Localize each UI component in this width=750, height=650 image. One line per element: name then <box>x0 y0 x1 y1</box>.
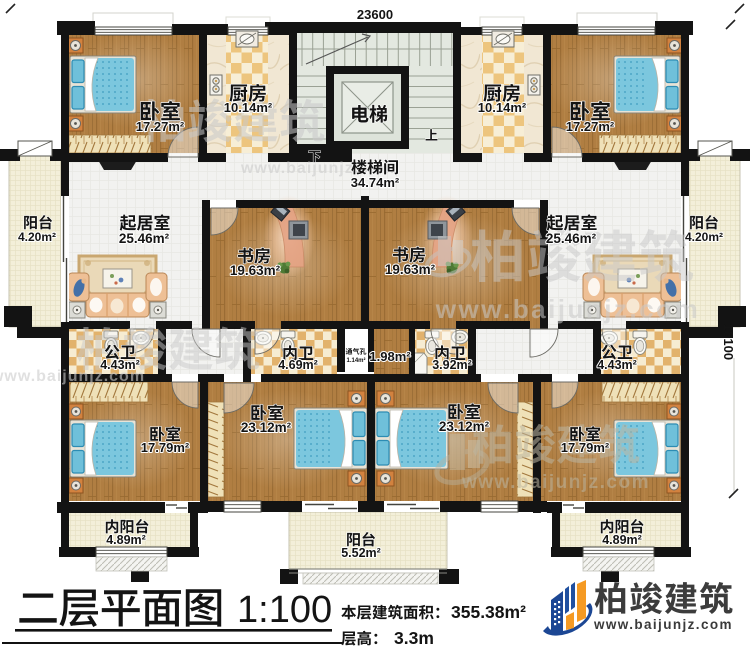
svg-text:19.63m²: 19.63m² <box>385 262 436 277</box>
svg-text:23.12m²: 23.12m² <box>241 420 292 435</box>
svg-text:18100: 18100 <box>721 324 736 360</box>
svg-text:17.79m²: 17.79m² <box>141 440 190 455</box>
svg-text:355.38m²: 355.38m² <box>451 602 526 622</box>
svg-text:www.baijunjz.com: www.baijunjz.com <box>435 294 700 324</box>
svg-text:17.27m²: 17.27m² <box>136 119 185 134</box>
svg-text:17.79m²: 17.79m² <box>561 440 610 455</box>
svg-text:3.92m²: 3.92m² <box>432 358 472 372</box>
svg-text:4.69m²: 4.69m² <box>278 358 318 372</box>
svg-text:www.baijunjz.com: www.baijunjz.com <box>593 617 733 632</box>
svg-text:4.43m²: 4.43m² <box>597 358 637 372</box>
svg-text:23600: 23600 <box>357 7 393 22</box>
svg-text:www.baijunjz.com: www.baijunjz.com <box>461 472 650 493</box>
svg-text:3.3m: 3.3m <box>394 628 434 648</box>
svg-text:10.14m²: 10.14m² <box>224 100 273 115</box>
svg-text:25.46m²: 25.46m² <box>546 231 597 246</box>
svg-text:4.89m²: 4.89m² <box>602 533 642 547</box>
svg-text:17.27m²: 17.27m² <box>566 119 615 134</box>
svg-text:4.89m²: 4.89m² <box>106 533 146 547</box>
svg-text:23.12m²: 23.12m² <box>439 419 490 434</box>
svg-text:4.43m²: 4.43m² <box>100 358 140 372</box>
svg-text:1.14m²: 1.14m² <box>346 357 365 364</box>
svg-text:4.20m²: 4.20m² <box>685 230 723 244</box>
svg-text:5.52m²: 5.52m² <box>341 546 381 560</box>
svg-text:1.98m²: 1.98m² <box>369 349 411 364</box>
svg-text:4.20m²: 4.20m² <box>18 230 56 244</box>
svg-text:25.46m²: 25.46m² <box>119 231 170 246</box>
svg-text:10.14m²: 10.14m² <box>478 100 527 115</box>
svg-text:19.63m²: 19.63m² <box>230 263 281 278</box>
svg-text:34.74m²: 34.74m² <box>351 175 400 190</box>
svg-text:1:100: 1:100 <box>237 589 332 631</box>
